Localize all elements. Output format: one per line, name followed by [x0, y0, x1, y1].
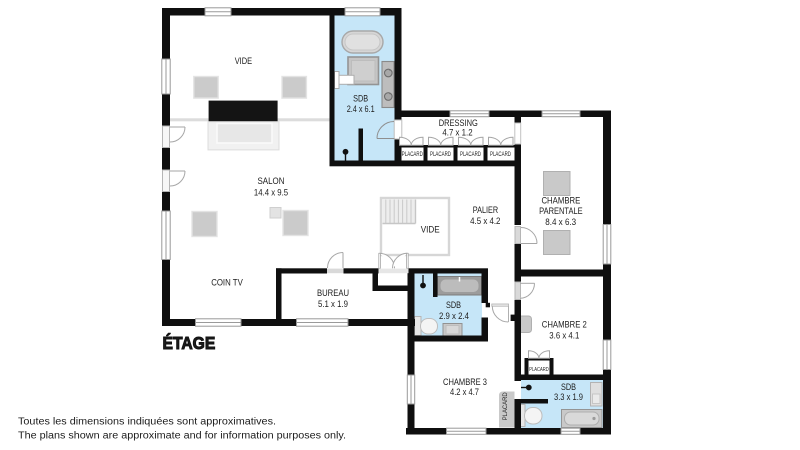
svg-text:14.4 x 9.5: 14.4 x 9.5 — [254, 187, 288, 197]
svg-text:PLACARD: PLACARD — [529, 367, 549, 373]
svg-text:4.7 x 1.2: 4.7 x 1.2 — [442, 128, 472, 138]
svg-text:3.3 x 1.9: 3.3 x 1.9 — [554, 392, 583, 402]
svg-text:COIN TV: COIN TV — [211, 277, 243, 287]
svg-text:4.5 x 4.2: 4.5 x 4.2 — [470, 216, 500, 226]
svg-text:SALON: SALON — [258, 176, 285, 186]
svg-text:PALIER: PALIER — [473, 205, 499, 215]
svg-text:VIDE: VIDE — [421, 225, 440, 235]
svg-text:3.6 x 4.1: 3.6 x 4.1 — [549, 330, 579, 340]
svg-text:ÉTAGE: ÉTAGE — [163, 332, 216, 353]
svg-text:PLACARD: PLACARD — [490, 152, 511, 158]
svg-text:CHAMBRE: CHAMBRE — [541, 195, 580, 205]
svg-text:2.4 x 6.1: 2.4 x 6.1 — [347, 104, 375, 114]
svg-text:5.1 x 1.9: 5.1 x 1.9 — [318, 299, 348, 309]
svg-text:8.4 x 6.3: 8.4 x 6.3 — [545, 217, 576, 227]
svg-text:CHAMBRE 3: CHAMBRE 3 — [443, 377, 487, 387]
svg-text:VIDE: VIDE — [235, 56, 252, 66]
svg-text:4.2 x 4.7: 4.2 x 4.7 — [450, 387, 479, 397]
svg-text:SDB: SDB — [561, 382, 576, 392]
svg-text:DRESSING: DRESSING — [439, 118, 478, 128]
svg-text:The plans shown are approximat: The plans shown are approximate and for … — [18, 431, 346, 442]
svg-text:PLACARD: PLACARD — [502, 392, 509, 420]
svg-text:PLACARD: PLACARD — [402, 152, 423, 158]
svg-text:2.9 x 2.4: 2.9 x 2.4 — [439, 311, 469, 321]
svg-text:CHAMBRE 2: CHAMBRE 2 — [542, 319, 587, 329]
svg-text:PLACARD: PLACARD — [430, 152, 451, 158]
svg-text:PARENTALE: PARENTALE — [539, 206, 583, 216]
svg-text:BUREAU: BUREAU — [317, 288, 349, 298]
svg-text:PLACARD: PLACARD — [460, 152, 481, 158]
svg-text:Toutes les dimensions indiquée: Toutes les dimensions indiquées sont app… — [18, 417, 276, 428]
svg-text:SDB: SDB — [353, 93, 368, 103]
svg-text:SDB: SDB — [446, 300, 461, 310]
